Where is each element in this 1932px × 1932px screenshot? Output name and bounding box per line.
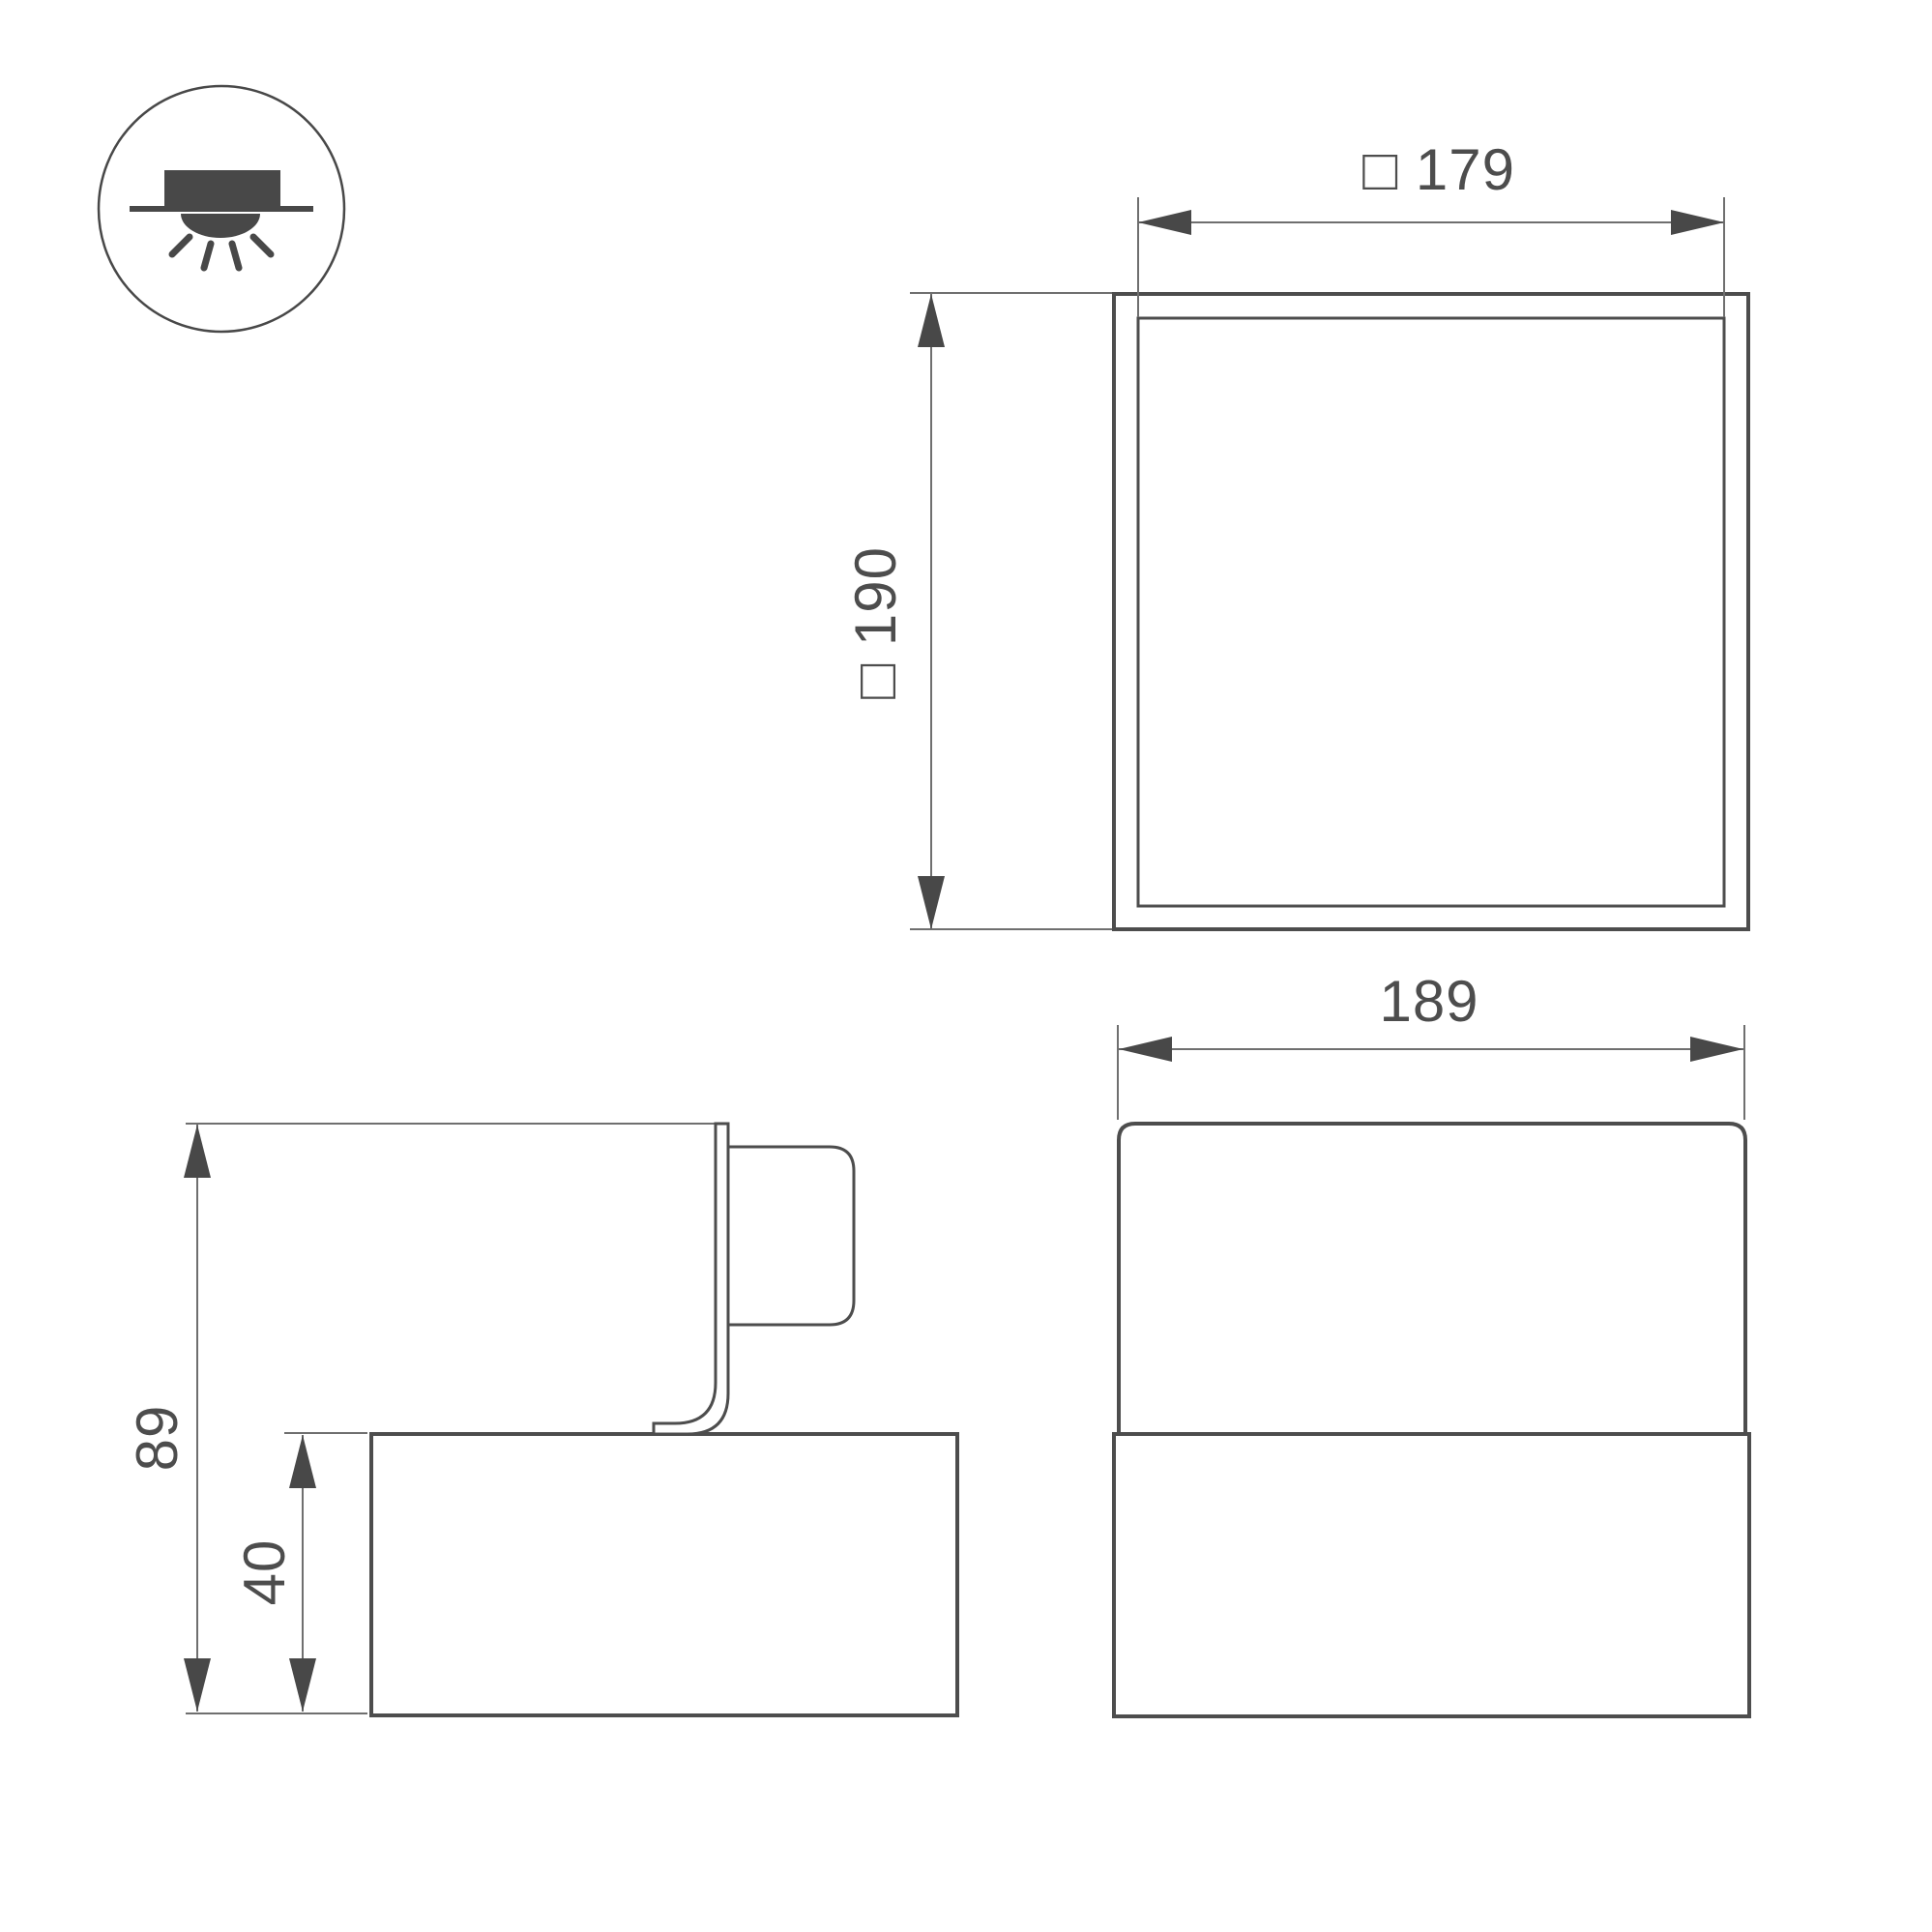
dimension-inner-width — [1138, 197, 1724, 317]
dim-label-front-width: 189 — [1379, 973, 1478, 1031]
side-view-mounting-bracket — [654, 1124, 728, 1434]
drawing-canvas — [0, 0, 1932, 1932]
arrowhead-right — [1690, 1037, 1743, 1062]
side-view — [184, 1124, 957, 1715]
dimension-front-width — [1118, 1025, 1744, 1120]
arrowhead-up — [289, 1435, 316, 1488]
arrowhead-up — [918, 294, 945, 347]
arrowhead-right — [1671, 210, 1724, 235]
top-view-inner-square — [1138, 318, 1724, 906]
front-view-body — [1119, 1124, 1745, 1434]
dim-label-side-total-height: 89 — [129, 1405, 187, 1472]
arrowhead-left — [1119, 1037, 1172, 1062]
arrowhead-down — [289, 1658, 316, 1712]
side-view-base-box — [371, 1434, 957, 1715]
icon-light-dome — [181, 214, 260, 238]
top-view — [910, 197, 1748, 929]
arrowhead-left — [1138, 210, 1191, 235]
dim-label-side-base-height: 40 — [236, 1539, 294, 1606]
side-view-spring-clip — [728, 1147, 854, 1325]
ceiling-mount-icon — [99, 86, 344, 332]
front-view-base — [1114, 1434, 1749, 1716]
dim-label-top-view-outer-size: □ 190 — [847, 546, 905, 699]
dimension-outer-height — [910, 293, 1112, 929]
arrowhead-up — [184, 1125, 211, 1178]
front-view — [1114, 1025, 1749, 1716]
top-view-outer-square — [1114, 294, 1748, 929]
dimension-total-height — [184, 1125, 367, 1713]
icon-light-rays — [172, 237, 271, 268]
arrowhead-down — [184, 1658, 211, 1712]
icon-lamp-body — [164, 170, 280, 207]
arrowhead-down — [918, 876, 945, 929]
luminaire-dimension-drawing: □ 179 □ 190 189 89 40 — [0, 0, 1932, 1932]
dim-label-top-view-inner-size: □ 179 — [1362, 141, 1515, 199]
